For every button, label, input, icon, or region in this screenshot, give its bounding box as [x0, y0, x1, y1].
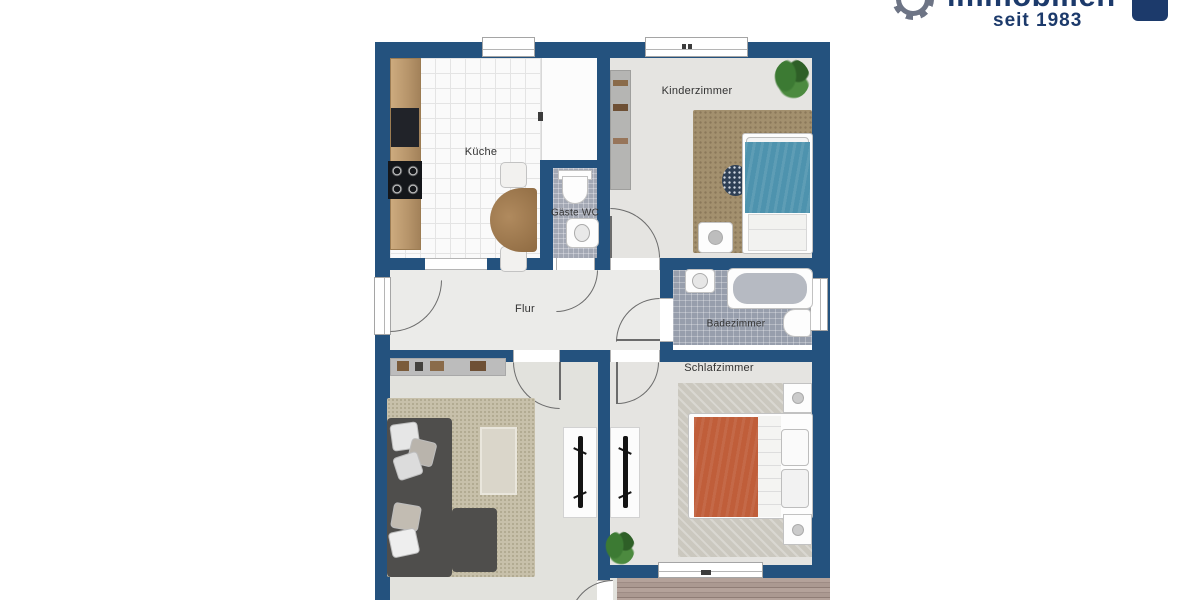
wall-top	[375, 42, 830, 58]
kids-wardrobe-item1	[613, 80, 628, 86]
kids-room-window-handle	[682, 44, 686, 49]
kids-room-window-handle2	[688, 44, 692, 49]
bathroom-door-opening	[660, 298, 673, 342]
floor-plan: Küche Gäste WC Kinderzimmer Flur Badezim…	[375, 42, 830, 600]
kitchen-window	[482, 37, 535, 57]
kids-bed-duvet	[745, 142, 810, 213]
entrance-door-frame	[374, 277, 391, 335]
sofa-pillow-4	[390, 502, 422, 532]
shelf-books-1	[397, 361, 409, 371]
brand-logo: immobilien IVB seit 1983	[880, 0, 1180, 45]
bedroom-sheet	[758, 416, 781, 517]
living-coffee-table	[480, 427, 517, 495]
sofa-foot	[452, 508, 497, 572]
kitchen-hallway-opening	[425, 258, 487, 270]
bedroom-door-opening	[610, 350, 660, 362]
balcony-window-handle	[701, 570, 711, 575]
brand-badge: IVB	[1132, 0, 1168, 21]
wall-hallway-bottom-b	[560, 350, 610, 362]
kids-wardrobe-item3	[613, 138, 628, 144]
kitchen-niche-floor	[541, 58, 597, 160]
living-room-door-opening	[513, 350, 560, 362]
guest-wc-sink-basin	[574, 224, 590, 242]
kitchen-hob	[388, 161, 422, 199]
brand-badge-text: IVB	[1135, 0, 1168, 1]
label-gaeste-wc: Gäste WC	[551, 208, 599, 219]
kids-wardrobe	[610, 70, 631, 190]
kids-room-window	[645, 37, 748, 57]
bedroom-pillow-1	[781, 429, 809, 466]
wall-wc-top	[553, 160, 597, 168]
shelf-books-4	[470, 361, 486, 371]
kitchen-sink-appliance	[391, 108, 419, 147]
label-flur: Flur	[515, 303, 535, 315]
balcony-deck	[617, 578, 830, 600]
floor-plan-page: immobilien IVB seit 1983	[0, 0, 1200, 600]
label-schlafzimmer: Schlafzimmer	[684, 362, 754, 374]
bedroom-plant	[605, 531, 635, 565]
shelf-books-2	[415, 362, 423, 371]
shelf-books-3	[430, 361, 444, 371]
bathroom-sink-basin	[692, 273, 708, 289]
kitchen-chair-top	[500, 162, 527, 188]
kitchen-counter	[390, 58, 421, 250]
bedroom-pillow-2	[781, 469, 809, 508]
wall-hallway-top-c	[595, 258, 610, 270]
living-room-door-leaf	[559, 362, 561, 400]
guest-wc-toilet-bowl	[562, 176, 588, 204]
bathroom-door-leaf	[616, 339, 660, 341]
wall-hallway-bottom-c	[660, 350, 812, 362]
kids-room-door-leaf	[610, 216, 612, 258]
nightstand-bottom-lamp	[792, 524, 804, 536]
label-kueche: Küche	[465, 146, 497, 158]
nightstand-top-lamp	[792, 392, 804, 404]
kids-bed-foot-blanket	[748, 214, 807, 251]
wall-bathroom-left-b	[660, 342, 673, 350]
kitchen-wall-mark	[538, 112, 543, 121]
kids-room-door-opening	[610, 258, 660, 270]
bathtub-basin	[733, 273, 807, 304]
bedroom-tv	[623, 436, 628, 508]
kids-stool-seat	[708, 230, 723, 245]
living-tv	[578, 436, 583, 508]
label-badezimmer: Badezimmer	[707, 319, 766, 330]
wall-living-bedroom	[598, 362, 610, 600]
bedroom-door-leaf	[616, 362, 618, 404]
bedroom-duvet	[694, 417, 758, 517]
guest-wc-door-opening	[556, 258, 595, 270]
bathroom-toilet	[783, 309, 811, 337]
brand-tagline: seit 1983	[993, 10, 1082, 32]
gear-icon	[892, 0, 934, 20]
label-kinderzimmer: Kinderzimmer	[662, 85, 733, 97]
wall-hallway-top-a	[390, 258, 425, 270]
kids-room-plant	[774, 59, 810, 99]
kids-wardrobe-item2	[613, 104, 628, 111]
wall-bathroom-left-a	[660, 270, 673, 298]
